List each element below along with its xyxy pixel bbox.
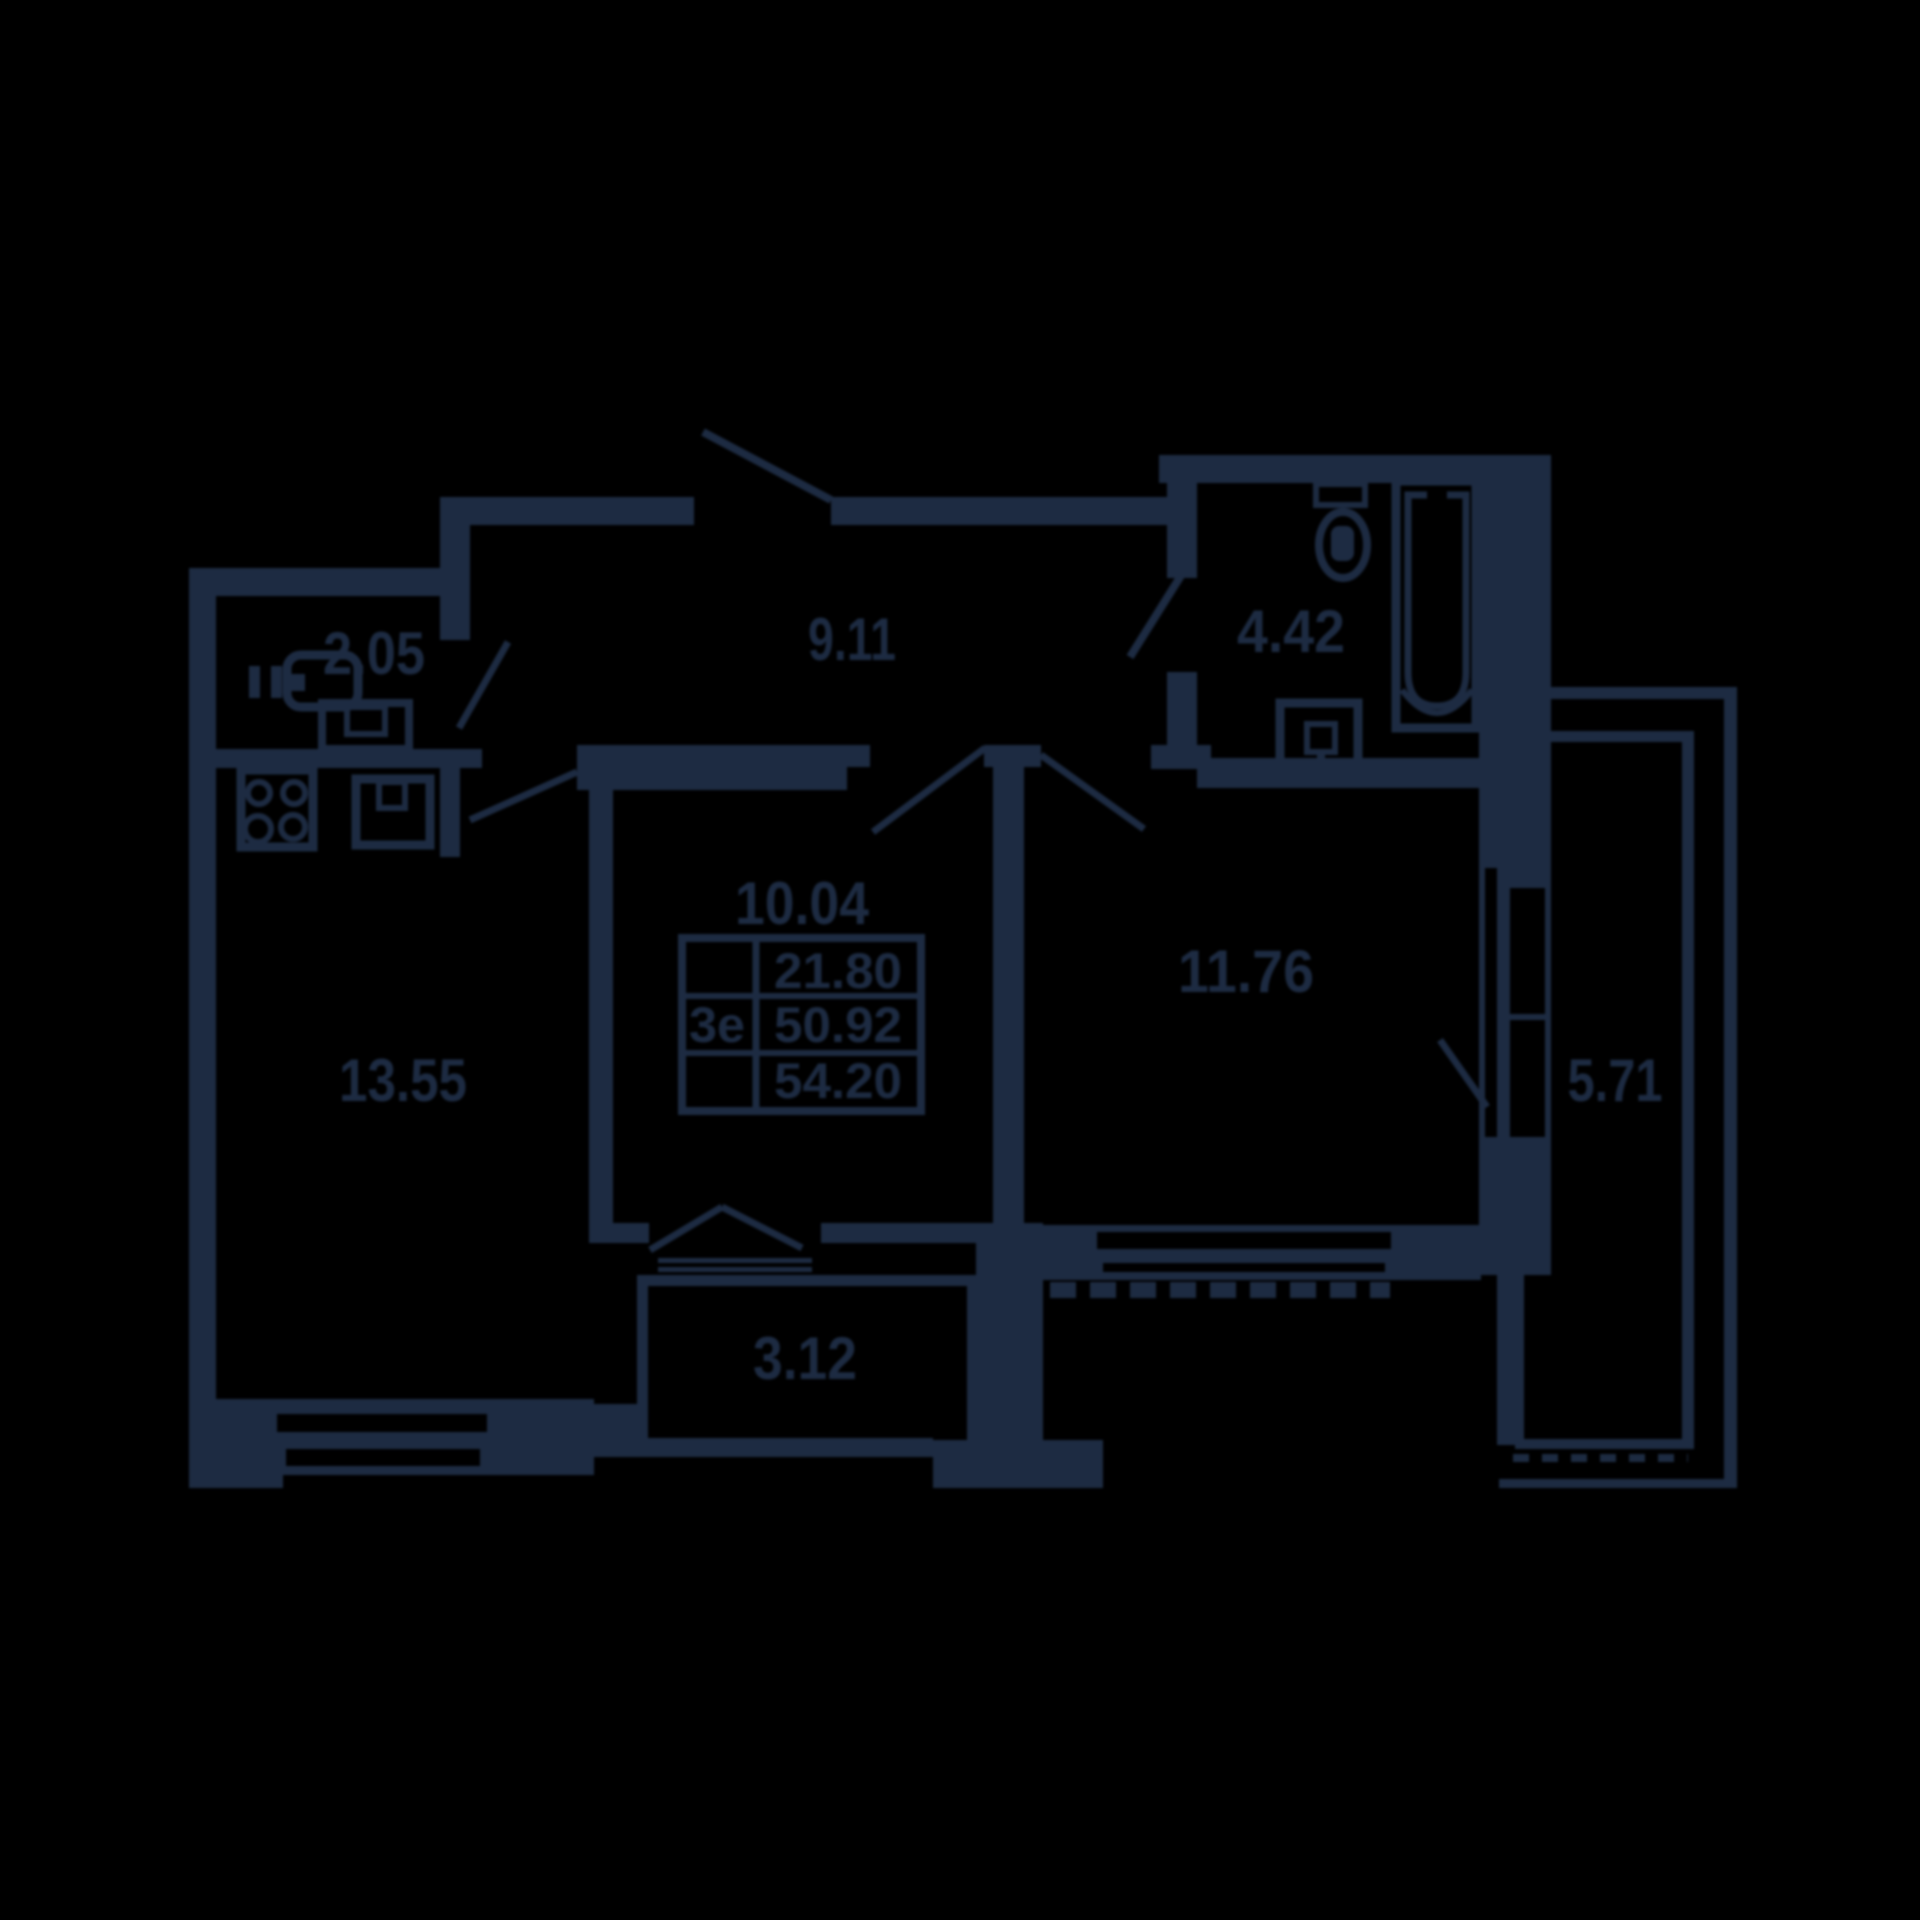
svg-text:21.80: 21.80 (774, 943, 902, 999)
svg-text:9.11: 9.11 (808, 606, 896, 673)
svg-text:10.04: 10.04 (735, 870, 870, 937)
svg-text:3е: 3е (689, 997, 745, 1053)
svg-text:5.71: 5.71 (1568, 1047, 1663, 1114)
svg-text:50.92: 50.92 (774, 997, 902, 1053)
svg-text:3.12: 3.12 (753, 1325, 857, 1392)
svg-text:54.20: 54.20 (774, 1053, 902, 1109)
svg-text:2.05: 2.05 (323, 620, 425, 687)
svg-text:13.55: 13.55 (339, 1047, 467, 1114)
svg-text:11.76: 11.76 (1178, 938, 1314, 1005)
svg-text:4.42: 4.42 (1237, 598, 1345, 665)
